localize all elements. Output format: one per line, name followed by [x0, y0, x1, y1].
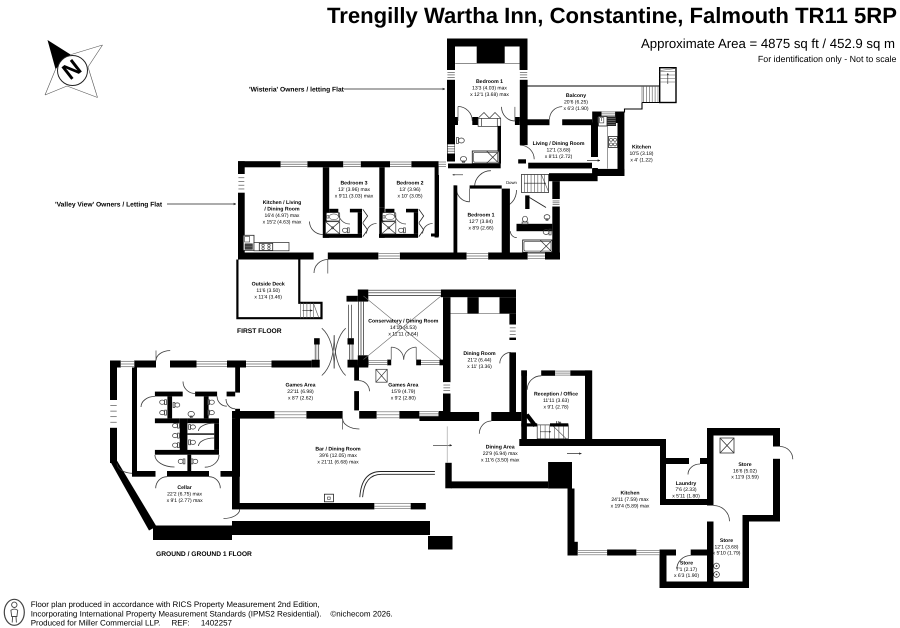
svg-text:Laundry: Laundry [676, 481, 697, 487]
svg-text:x 10' (3.05): x 10' (3.05) [397, 194, 422, 200]
svg-text:16'4 (4.97) max: 16'4 (4.97) max [265, 213, 300, 219]
svg-text:x 11'6 (3.50) max: x 11'6 (3.50) max [481, 458, 520, 464]
svg-text:Kitchen / Living: Kitchen / Living [263, 200, 302, 206]
svg-text:'Valley View' Owners / Letting: 'Valley View' Owners / Letting Flat [55, 202, 163, 209]
svg-text:Trengilly Wartha Inn, Constant: Trengilly Wartha Inn, Constantine, Falmo… [327, 3, 897, 28]
svg-text:Reception / Office: Reception / Office [534, 391, 578, 397]
svg-text:x 11' (3.36): x 11' (3.36) [467, 364, 492, 370]
svg-text:Kitchen: Kitchen [620, 491, 639, 497]
svg-text:22'11 (6.98): 22'11 (6.98) [287, 389, 314, 395]
svg-text:x 11'4 (3.46): x 11'4 (3.46) [254, 295, 282, 301]
svg-text:22'9 (6.94) max: 22'9 (6.94) max [483, 451, 518, 457]
svg-text:x 8'11 (2.72): x 8'11 (2.72) [545, 154, 573, 160]
svg-text:Games Area: Games Area [285, 382, 315, 388]
svg-text:Kitchen: Kitchen [632, 145, 651, 151]
svg-text:x 21'11 (6.68) max: x 21'11 (6.68) max [317, 460, 359, 466]
svg-text:14'10 (4.53): 14'10 (4.53) [390, 325, 417, 331]
svg-text:x 11'11 (3.64): x 11'11 (3.64) [388, 331, 418, 337]
svg-text:x 9'1 (2.77) max: x 9'1 (2.77) max [167, 498, 204, 504]
svg-text:For identification only - Not: For identification only - Not to scale [758, 54, 897, 64]
svg-text:Bedroom 1: Bedroom 1 [476, 79, 503, 85]
svg-text:Cellar: Cellar [177, 485, 191, 491]
svg-text:13' (3.96): 13' (3.96) [399, 187, 420, 193]
svg-text:12'1 (3.68): 12'1 (3.68) [547, 148, 571, 154]
svg-text:13'3 (4.03) max: 13'3 (4.03) max [472, 86, 507, 92]
svg-text:Store: Store [680, 561, 693, 567]
svg-text:x 5'10 (1.79): x 5'10 (1.79) [713, 551, 741, 557]
svg-text:11'11 (3.63): 11'11 (3.63) [543, 398, 569, 404]
svg-text:Bedroom 1: Bedroom 1 [467, 213, 494, 219]
svg-text:7'1 (2.17): 7'1 (2.17) [676, 567, 697, 573]
svg-text:24'11 (7.59) max: 24'11 (7.59) max [611, 497, 649, 503]
svg-text:x 4' (1.22): x 4' (1.22) [630, 158, 653, 164]
svg-text:Incorporating International Pr: Incorporating International Property Mea… [31, 609, 393, 618]
svg-text:x 8'7 (2.62): x 8'7 (2.62) [288, 395, 313, 401]
svg-text:Dining Room: Dining Room [463, 351, 496, 357]
svg-text:16'6 (5.02): 16'6 (5.02) [733, 468, 757, 474]
svg-text:/ Dining Room: / Dining Room [264, 207, 300, 213]
svg-text:Outside Deck: Outside Deck [252, 282, 285, 288]
svg-text:Approximate Area = 4875 sq ft: Approximate Area = 4875 sq ft / 452.9 sq… [641, 36, 895, 51]
svg-text:39'6 (12.05) max: 39'6 (12.05) max [319, 453, 357, 459]
svg-text:12'1 (3.68): 12'1 (3.68) [715, 544, 739, 550]
svg-text:x 5'11 (1.80): x 5'11 (1.80) [672, 493, 700, 499]
svg-text:Balcony: Balcony [566, 93, 586, 99]
svg-text:x 9'2 (2.80): x 9'2 (2.80) [391, 395, 416, 401]
svg-text:20'6 (6.25): 20'6 (6.25) [564, 100, 588, 106]
svg-text:21'2 (6.44): 21'2 (6.44) [468, 358, 492, 364]
svg-text:Down: Down [506, 180, 517, 185]
svg-text:13' (3.96) max: 13' (3.96) max [338, 187, 371, 193]
svg-text:Bedroom 2: Bedroom 2 [396, 181, 423, 187]
svg-text:Store: Store [720, 538, 733, 544]
svg-text:Games Area: Games Area [388, 382, 418, 388]
svg-text:Living / Dining Room: Living / Dining Room [533, 141, 585, 147]
svg-text:Dining Area: Dining Area [486, 445, 515, 451]
svg-text:x 9'1 (2.78): x 9'1 (2.78) [543, 404, 568, 410]
svg-text:Bar / Dining Room: Bar / Dining Room [315, 447, 361, 453]
svg-text:7'6 (2.33): 7'6 (2.33) [675, 487, 696, 493]
svg-text:Store: Store [738, 462, 751, 468]
svg-text:x 9'11 (3.03) max: x 9'11 (3.03) max [335, 194, 374, 200]
svg-text:x 6'3 (1.90): x 6'3 (1.90) [563, 106, 588, 112]
svg-text:11'6 (3.50): 11'6 (3.50) [256, 288, 280, 294]
svg-text:x 11'9 (3.59): x 11'9 (3.59) [731, 475, 759, 481]
svg-text:10'5 (3.18): 10'5 (3.18) [630, 151, 654, 157]
svg-text:x 15'2 (4.63) max: x 15'2 (4.63) max [263, 220, 302, 226]
svg-text:12'7 (3.84): 12'7 (3.84) [469, 219, 493, 225]
svg-text:22'2 (6.75) max: 22'2 (6.75) max [167, 492, 202, 498]
svg-text:GROUND / GROUND 1 FLOOR: GROUND / GROUND 1 FLOOR [156, 551, 252, 558]
svg-text:x 19'4 (5.89) max: x 19'4 (5.89) max [611, 504, 650, 510]
svg-text:FIRST FLOOR: FIRST FLOOR [237, 328, 282, 335]
svg-text:Bedroom 3: Bedroom 3 [340, 181, 367, 187]
svg-text:Conservatory / Dining Room: Conservatory / Dining Room [368, 318, 438, 324]
svg-text:15'9 (4.79): 15'9 (4.79) [391, 389, 415, 395]
svg-text:x 6'3 (1.90): x 6'3 (1.90) [674, 573, 699, 579]
svg-text:Floor plan produced in accorda: Floor plan produced in accordance with R… [31, 600, 320, 609]
svg-text:x 12'1 (3.68) max: x 12'1 (3.68) max [470, 92, 509, 98]
svg-text:'Wisteria' Owners / letting Fl: 'Wisteria' Owners / letting Flat [249, 87, 345, 94]
svg-text:Produced for Miller Commercial: Produced for Miller Commercial LLP. REF:… [31, 619, 233, 628]
svg-text:x 8'9 (2.66): x 8'9 (2.66) [468, 226, 493, 232]
